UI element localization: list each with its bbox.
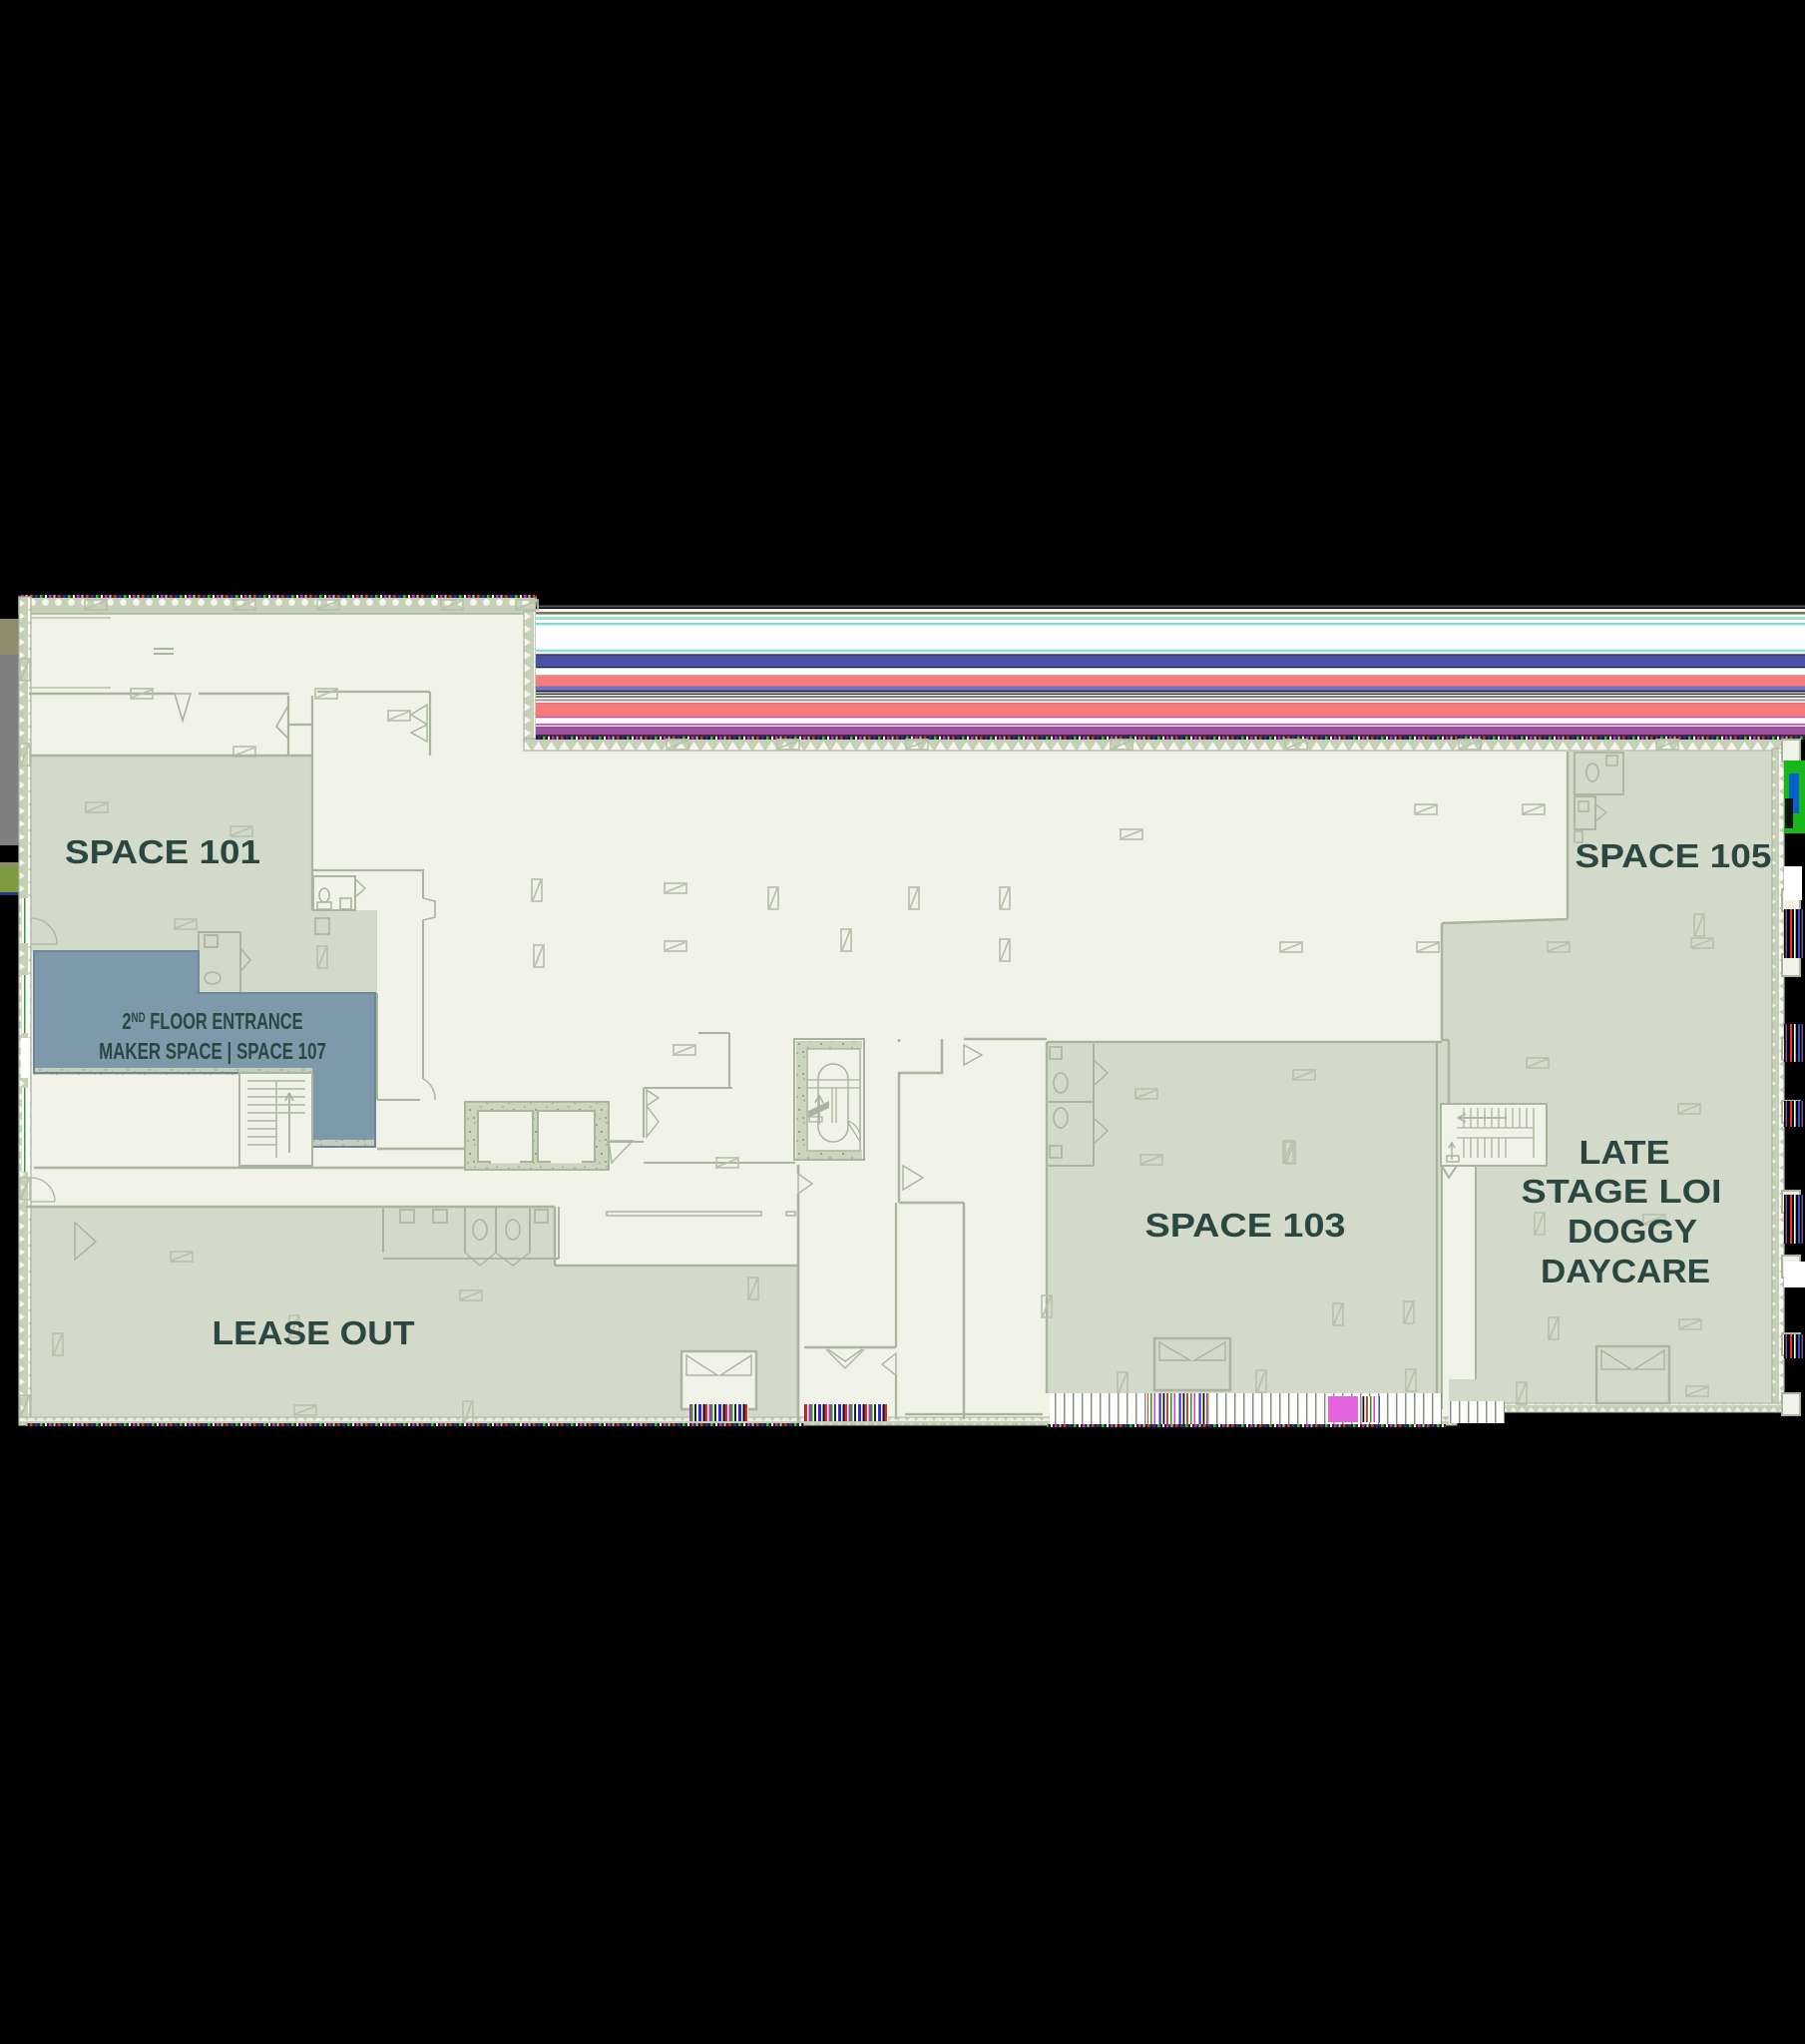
svg-text:LATE: LATE — [1579, 1134, 1670, 1171]
svg-text:SPACE 105: SPACE 105 — [1576, 837, 1772, 874]
svg-text:DAYCARE: DAYCARE — [1541, 1253, 1710, 1289]
svg-text:STAGE LOI: STAGE LOI — [1522, 1173, 1722, 1210]
svg-text:2ND FLOOR ENTRANCE: 2ND FLOOR ENTRANCE — [122, 1009, 302, 1035]
svg-text:DOGGY: DOGGY — [1568, 1213, 1697, 1250]
svg-text:MAKER SPACE | SPACE 107: MAKER SPACE | SPACE 107 — [99, 1038, 326, 1064]
svg-text:SPACE 101: SPACE 101 — [65, 833, 260, 870]
svg-text:LEASE OUT: LEASE OUT — [213, 1314, 415, 1351]
svg-text:SPACE 103: SPACE 103 — [1145, 1207, 1346, 1244]
